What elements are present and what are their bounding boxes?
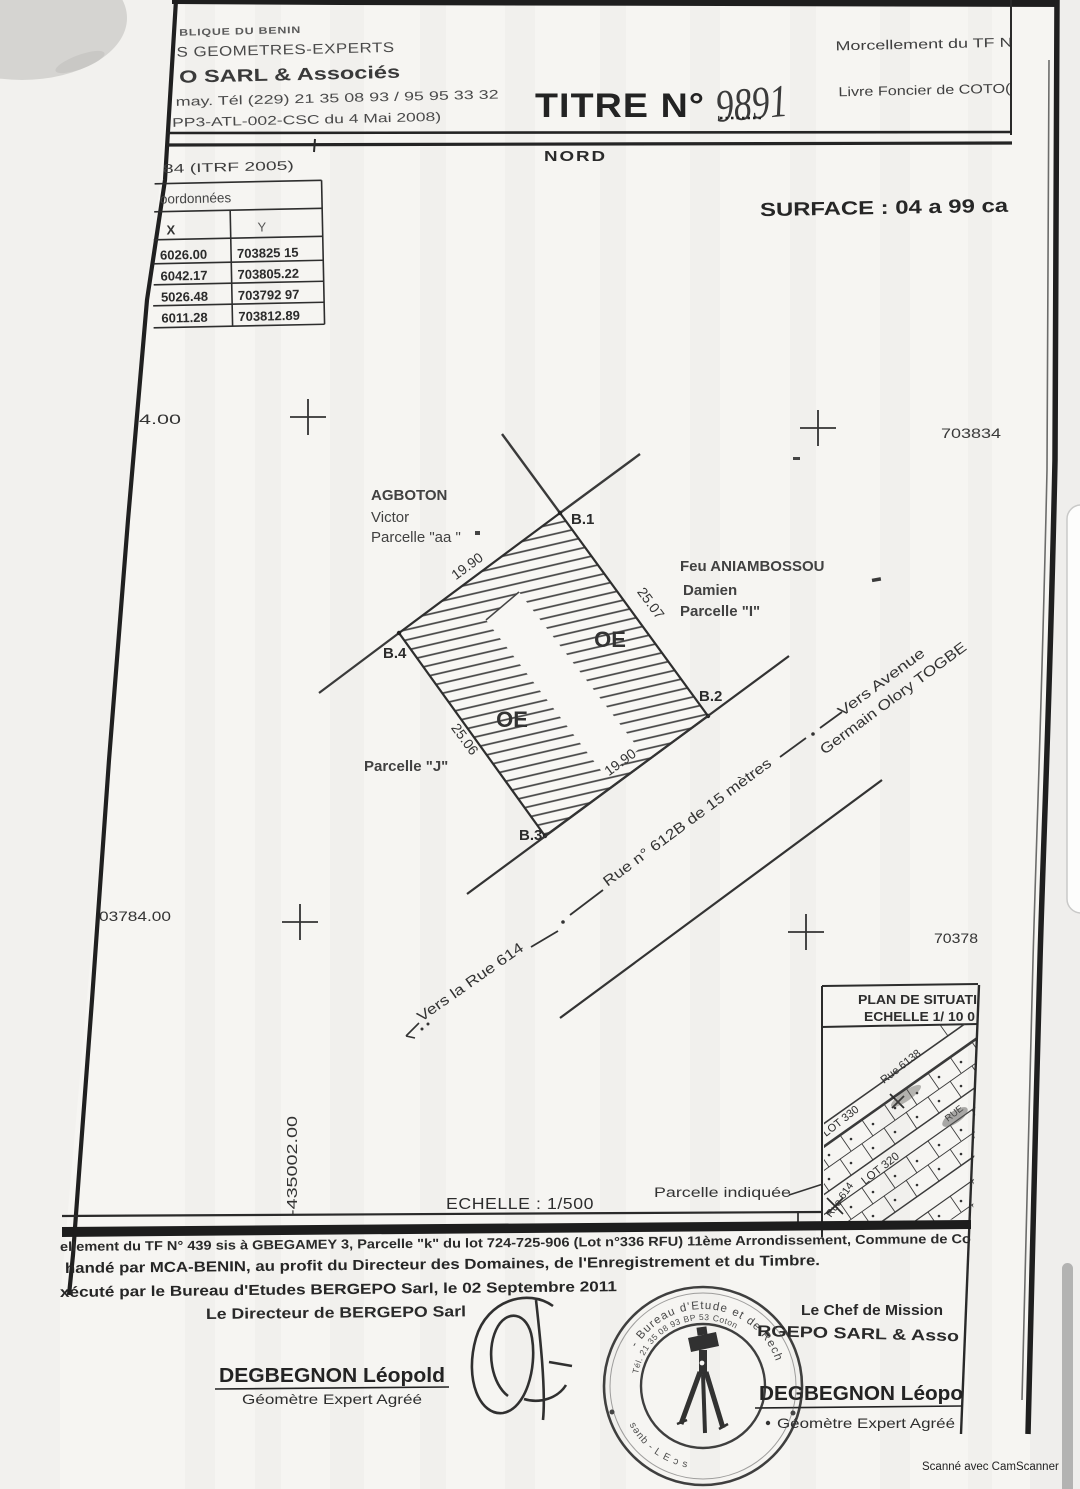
- svg-text:PLAN DE SITUATI: PLAN DE SITUATI: [858, 993, 977, 1007]
- svg-text:OE: OE: [496, 707, 528, 732]
- svg-text:B.4: B.4: [383, 645, 407, 662]
- svg-text:703792 97: 703792 97: [238, 287, 300, 303]
- svg-text:DEGBEGNON Léopo: DEGBEGNON Léopo: [759, 1383, 963, 1405]
- svg-text:03784.00: 03784.00: [99, 908, 171, 924]
- svg-text:6026.00: 6026.00: [160, 247, 207, 263]
- svg-text:703825 15: 703825 15: [237, 245, 299, 261]
- svg-text:Parcelle "J": Parcelle "J": [364, 758, 448, 775]
- svg-text:4.00: 4.00: [139, 411, 181, 427]
- svg-text:Damien: Damien: [683, 582, 737, 599]
- svg-text:Le Directeur de BERGEPO Sarl: Le Directeur de BERGEPO Sarl: [206, 1303, 466, 1323]
- svg-text:703812.89: 703812.89: [238, 308, 300, 324]
- svg-text:Le Chef de Mission: Le Chef de Mission: [801, 1303, 943, 1319]
- svg-text:Parcelle "aa ": Parcelle "aa ": [371, 529, 461, 546]
- svg-text:OE: OE: [594, 627, 626, 652]
- svg-text:Géomètre Expert Agréé: Géomètre Expert Agréé: [242, 1391, 422, 1407]
- svg-text:Scanné avec CamScanner: Scanné avec CamScanner: [922, 1461, 1059, 1473]
- svg-text:Parcelle "I": Parcelle "I": [680, 603, 760, 620]
- svg-text:B.1: B.1: [571, 511, 594, 528]
- svg-text:6042.17: 6042.17: [160, 268, 207, 284]
- svg-text:ECHELLE : 1/500: ECHELLE : 1/500: [446, 1196, 594, 1213]
- svg-text:Géomètre Expert Agréé: Géomètre Expert Agréé: [777, 1415, 955, 1431]
- svg-text:ECHELLE 1/ 10 0: ECHELLE 1/ 10 0: [864, 1010, 975, 1024]
- svg-text:X: X: [166, 222, 175, 237]
- svg-text:703834: 703834: [941, 425, 1001, 441]
- svg-text:Parcelle indiquée: Parcelle indiquée: [654, 1185, 791, 1200]
- svg-text:5026.48: 5026.48: [161, 289, 208, 305]
- svg-text:70378: 70378: [934, 930, 978, 946]
- svg-text:9891: 9891: [713, 75, 789, 132]
- svg-text:Victor: Victor: [371, 509, 409, 526]
- svg-text:-435002.00: -435002.00: [284, 1116, 301, 1216]
- svg-text:6011.28: 6011.28: [161, 310, 208, 326]
- svg-text:SURFACE : 04 a 99 ca: SURFACE : 04 a 99 ca: [760, 196, 1009, 221]
- svg-text:oordonnées: oordonnées: [160, 190, 232, 206]
- svg-text:B.2: B.2: [699, 688, 722, 705]
- svg-text:TITRE N°: TITRE N°: [535, 87, 705, 125]
- svg-text:DEGBEGNON Léopold: DEGBEGNON Léopold: [219, 1365, 445, 1387]
- svg-text:AGBOTON: AGBOTON: [371, 487, 447, 504]
- svg-text:Feu ANIAMBOSSOU: Feu ANIAMBOSSOU: [680, 558, 824, 575]
- svg-text:Y: Y: [257, 219, 266, 234]
- svg-text:703805.22: 703805.22: [237, 266, 299, 282]
- svg-text:NORD: NORD: [544, 149, 607, 165]
